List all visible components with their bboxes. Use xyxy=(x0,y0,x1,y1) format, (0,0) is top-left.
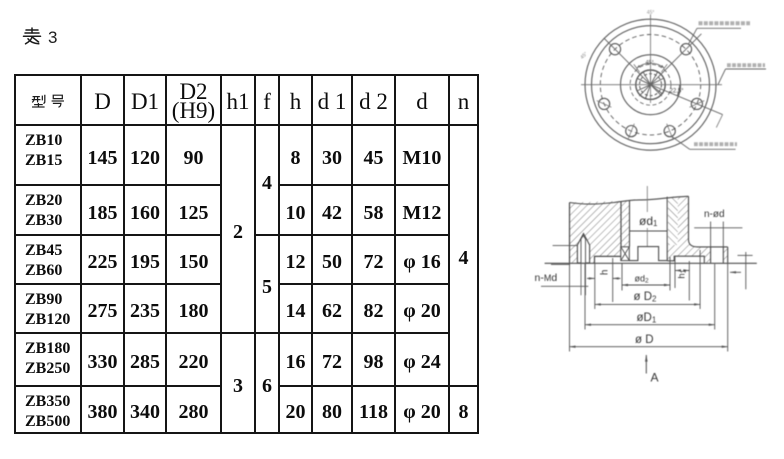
svg-text:ø D: ø D xyxy=(635,334,654,346)
svg-text:ød1: ød1 xyxy=(639,214,658,228)
svg-text:ø D2: ø D2 xyxy=(634,291,658,304)
svg-text:A: A xyxy=(651,371,659,385)
svg-text:øD1: øD1 xyxy=(637,312,657,325)
svg-text:n-ød: n-ød xyxy=(704,209,725,220)
svg-text:45°: 45° xyxy=(646,60,654,66)
svg-text:n-Md: n-Md xyxy=(535,272,558,284)
svg-text:ød2: ød2 xyxy=(635,274,650,285)
svg-text:h: h xyxy=(600,270,611,276)
svg-text:45°: 45° xyxy=(579,51,589,61)
svg-text:45°: 45° xyxy=(647,10,655,16)
svg-text:22.5°: 22.5° xyxy=(670,89,685,95)
